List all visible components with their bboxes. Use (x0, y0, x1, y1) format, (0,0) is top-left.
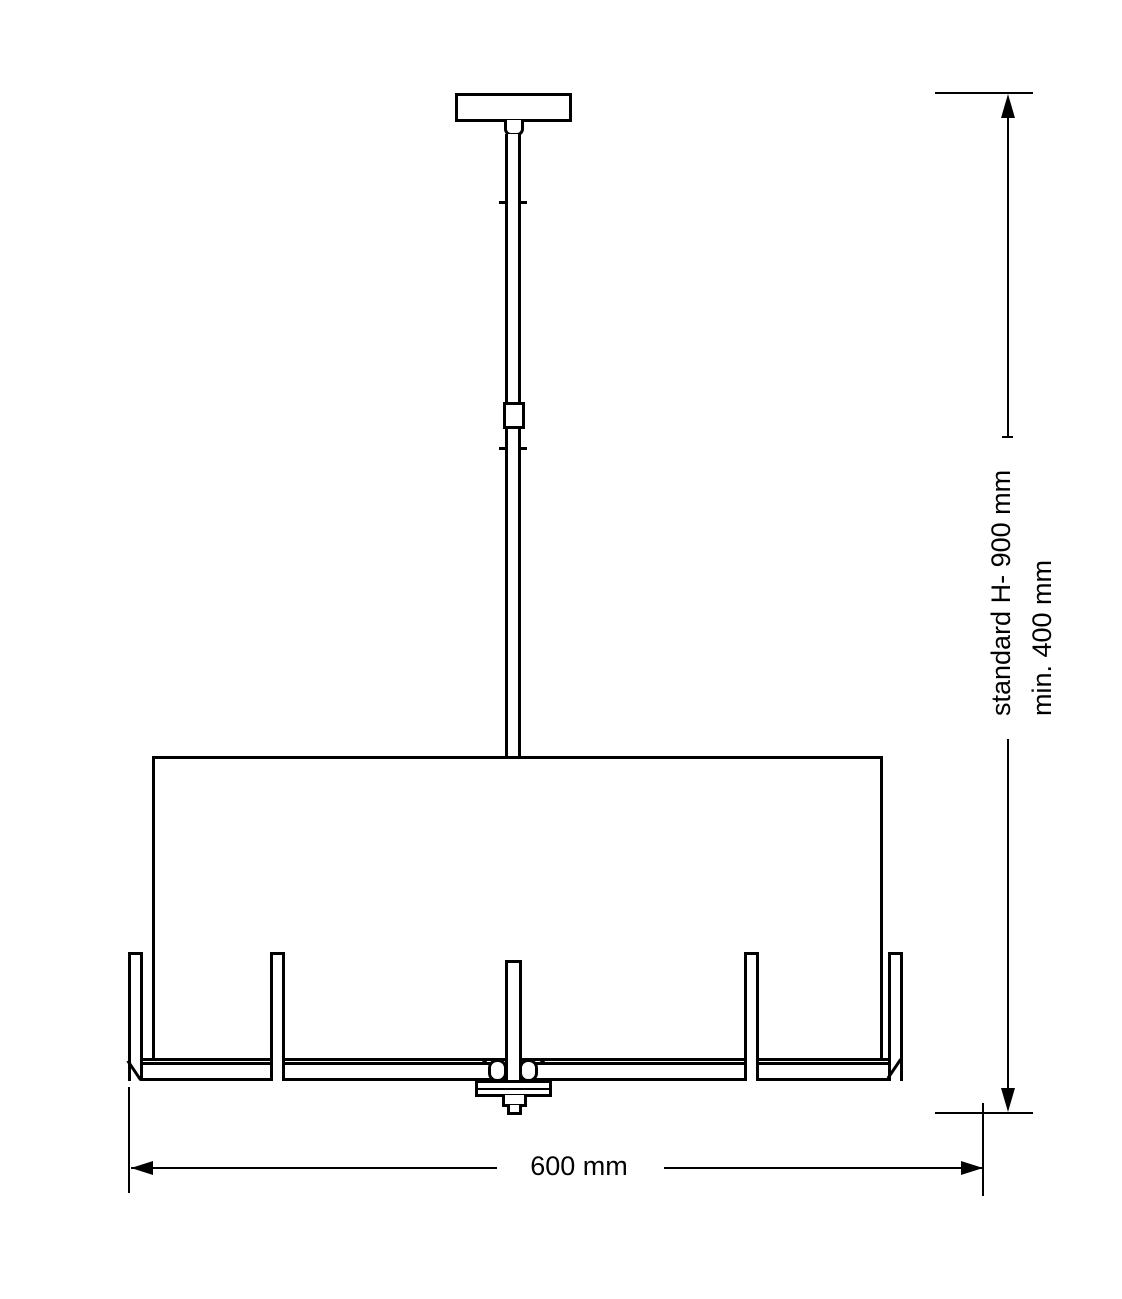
rod-tick-right-upper (519, 201, 527, 204)
candle-upright-2 (270, 952, 285, 1081)
candle-upright-center (505, 960, 522, 1081)
rod-tick-right-lower (519, 447, 527, 450)
candle-upright-4 (744, 952, 759, 1081)
extension-line-left (128, 1087, 130, 1193)
height-min-label: min. 400 mm (1029, 560, 1056, 716)
extension-line-right (982, 1103, 984, 1196)
height-dim-line-lower (1007, 739, 1009, 1089)
hub-finial (507, 1105, 522, 1115)
height-dim-break-tick (1002, 436, 1013, 438)
arrowhead-right-icon (961, 1161, 983, 1175)
rod-tick-left-upper (499, 201, 507, 204)
height-standard-label: standard H- 900 mm (988, 470, 1015, 716)
extension-line-bottom (935, 1112, 1033, 1114)
ceiling-canopy (455, 93, 572, 122)
rod-tick-left-lower (499, 447, 507, 450)
width-dim-line-left (131, 1167, 497, 1169)
extension-line-top (935, 92, 1033, 94)
hub-plate-edge (478, 1088, 549, 1090)
rod-coupler (503, 402, 525, 429)
arrowhead-down-icon (1001, 1088, 1015, 1112)
width-dim-line-right (664, 1167, 983, 1169)
height-dim-line-upper (1007, 112, 1009, 437)
hub-screw-right (540, 1060, 545, 1065)
hub-screw-left (482, 1060, 487, 1065)
dimension-drawing: standard H- 900 mm min. 400 mm 600 mm (0, 0, 1122, 1299)
width-label: 600 mm (519, 1153, 639, 1180)
